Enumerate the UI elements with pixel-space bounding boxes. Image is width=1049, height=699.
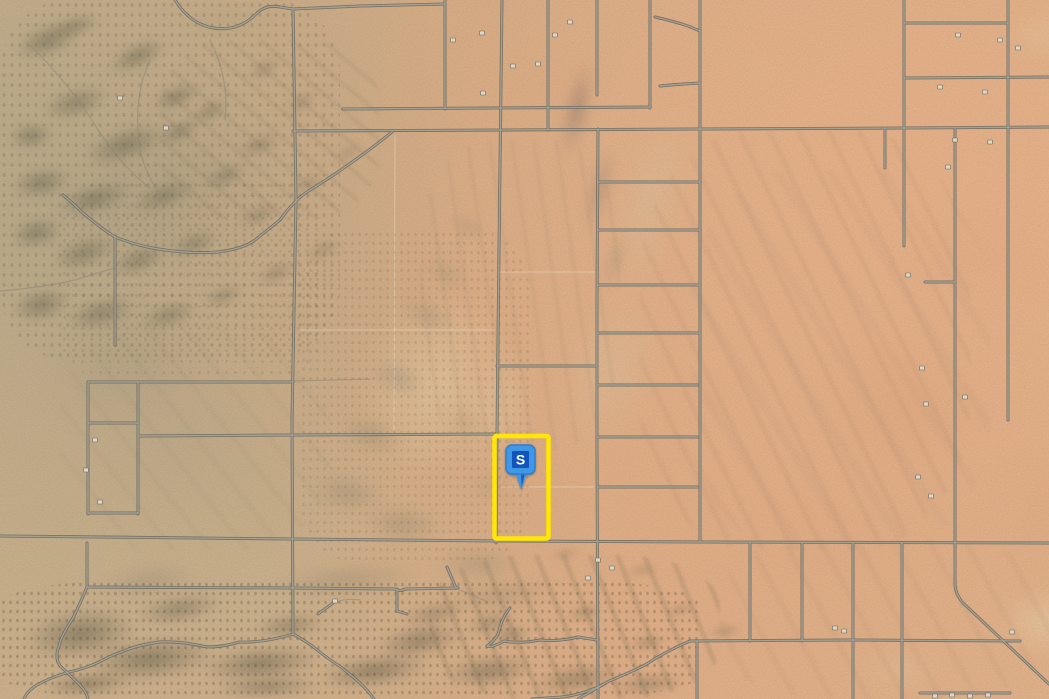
property-pin[interactable]: S — [504, 443, 538, 495]
terrain-layer — [0, 0, 1049, 699]
pin-label: S — [516, 452, 525, 468]
desert-base — [0, 0, 1049, 699]
satellite-map[interactable]: S — [0, 0, 1049, 699]
